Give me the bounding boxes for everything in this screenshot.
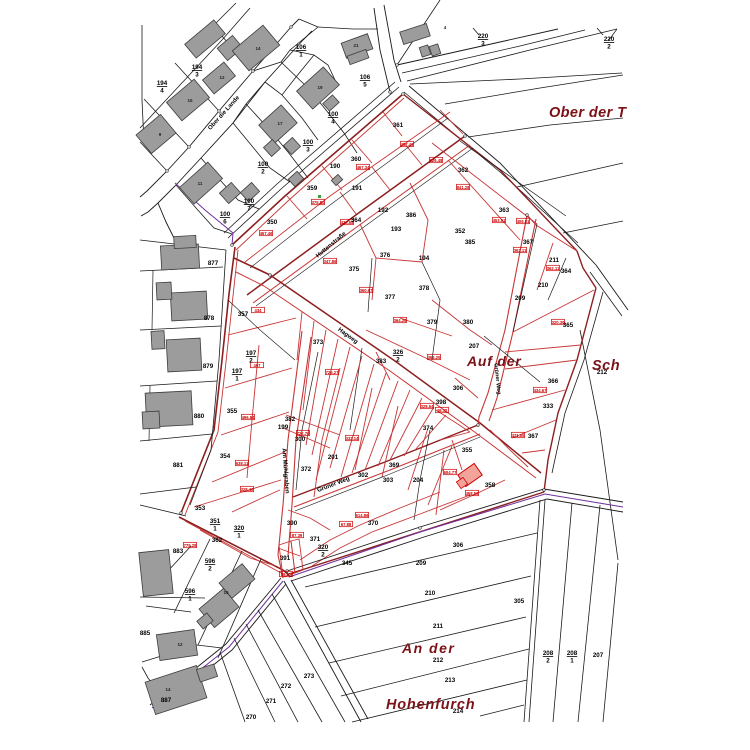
svg-text:367: 367: [523, 239, 534, 246]
svg-text:880: 880: [194, 413, 205, 420]
svg-text:883: 883: [173, 548, 184, 555]
svg-text:193: 193: [391, 226, 402, 233]
svg-text:365: 365: [563, 322, 574, 329]
svg-text:2: 2: [208, 566, 212, 573]
svg-text:371: 371: [310, 536, 321, 543]
svg-text:210: 210: [538, 282, 549, 289]
svg-text:67.88: 67.88: [341, 522, 352, 527]
svg-text:359: 359: [307, 185, 318, 192]
svg-text:273: 273: [304, 673, 315, 680]
svg-text:362.11: 362.11: [514, 248, 527, 253]
svg-text:376: 376: [380, 252, 391, 259]
svg-text:5: 5: [363, 82, 367, 89]
svg-text:14: 14: [165, 687, 171, 692]
svg-text:385: 385: [465, 239, 476, 246]
svg-text:305: 305: [514, 598, 525, 605]
svg-text:10: 10: [223, 590, 229, 595]
svg-text:191: 191: [352, 185, 363, 192]
svg-text:333: 333: [543, 403, 554, 410]
svg-text:210: 210: [425, 590, 436, 597]
svg-text:496.84: 496.84: [242, 415, 255, 420]
svg-text:106: 106: [296, 44, 307, 51]
svg-text:497: 497: [254, 363, 262, 368]
svg-text:209: 209: [515, 295, 526, 302]
svg-text:453.01: 453.01: [493, 218, 506, 223]
svg-text:100: 100: [258, 161, 269, 168]
svg-text:192: 192: [378, 207, 389, 214]
svg-text:364: 364: [561, 268, 572, 275]
svg-text:382: 382: [285, 416, 296, 423]
svg-text:19: 19: [317, 85, 323, 90]
svg-text:1: 1: [213, 526, 217, 533]
svg-text:2: 2: [607, 44, 611, 51]
svg-text:272: 272: [281, 683, 292, 690]
svg-text:328.64: 328.64: [421, 404, 434, 409]
svg-text:3: 3: [481, 41, 485, 48]
svg-text:87.39: 87.39: [292, 533, 303, 538]
svg-text:194: 194: [192, 64, 203, 71]
svg-text:457.46: 457.46: [401, 142, 414, 147]
svg-text:1: 1: [235, 376, 239, 383]
svg-text:14: 14: [255, 46, 261, 51]
svg-text:1: 1: [188, 596, 192, 603]
svg-text:626.48: 626.48: [430, 158, 443, 163]
svg-text:Hohenfurch: Hohenfurch: [386, 697, 475, 713]
svg-text:89.02: 89.02: [281, 572, 292, 577]
svg-text:209: 209: [416, 560, 427, 567]
svg-text:638.11: 638.11: [236, 461, 249, 466]
svg-text:208: 208: [567, 650, 578, 657]
svg-text:320: 320: [318, 544, 329, 551]
svg-text:885: 885: [140, 630, 151, 637]
svg-text:1: 1: [570, 658, 574, 665]
svg-text:7: 7: [247, 206, 251, 213]
svg-text:362.11: 362.11: [547, 266, 560, 271]
svg-text:207: 207: [593, 652, 604, 659]
svg-text:190: 190: [330, 163, 341, 170]
svg-text:409.81: 409.81: [517, 219, 530, 224]
svg-text:1: 1: [237, 533, 241, 540]
svg-text:879: 879: [203, 363, 214, 370]
svg-text:100: 100: [244, 198, 255, 205]
svg-text:370: 370: [368, 520, 379, 527]
svg-text:357: 357: [238, 311, 249, 318]
svg-text:364.26: 364.26: [394, 318, 407, 323]
svg-text:2: 2: [261, 169, 265, 176]
svg-text:208: 208: [543, 650, 554, 657]
svg-text:434.67: 434.67: [534, 388, 547, 393]
svg-text:3: 3: [306, 147, 310, 154]
svg-text:106: 106: [360, 74, 371, 81]
svg-text:380: 380: [463, 319, 474, 326]
svg-text:197: 197: [232, 368, 243, 375]
svg-text:378: 378: [419, 285, 430, 292]
svg-text:355: 355: [227, 408, 238, 415]
svg-text:306: 306: [453, 542, 464, 549]
svg-text:372: 372: [301, 466, 312, 473]
svg-text:100: 100: [220, 211, 231, 218]
svg-text:Auf der: Auf der: [466, 353, 522, 369]
svg-text:199: 199: [278, 424, 289, 431]
svg-text:367: 367: [528, 433, 539, 440]
svg-text:377: 377: [385, 294, 396, 301]
svg-text:364.25: 364.25: [428, 355, 441, 360]
svg-text:201: 201: [328, 454, 339, 461]
svg-text:211: 211: [549, 257, 560, 264]
svg-text:355: 355: [462, 447, 473, 454]
svg-text:361: 361: [393, 122, 404, 129]
svg-text:467.34: 467.34: [357, 165, 370, 170]
svg-text:12: 12: [219, 75, 225, 80]
svg-text:17: 17: [277, 121, 283, 126]
svg-text:2: 2: [249, 358, 253, 365]
svg-text:345: 345: [342, 560, 353, 567]
svg-text:360.67: 360.67: [360, 288, 373, 293]
svg-text:398: 398: [436, 399, 447, 406]
svg-text:391: 391: [280, 555, 291, 562]
svg-text:596: 596: [185, 588, 196, 595]
svg-text:362: 362: [458, 167, 469, 174]
svg-text:352: 352: [455, 228, 466, 235]
svg-text:364: 364: [351, 217, 362, 224]
svg-text:328.46: 328.46: [241, 487, 254, 492]
svg-text:211: 211: [433, 623, 444, 630]
svg-text:212: 212: [433, 657, 444, 664]
svg-text:2: 2: [396, 357, 400, 364]
svg-text:841.28: 841.28: [457, 185, 470, 190]
svg-text:4: 4: [160, 88, 164, 95]
svg-text:779.28: 779.28: [184, 543, 197, 548]
svg-text:375.80: 375.80: [312, 200, 325, 205]
svg-text:332.14: 332.14: [346, 436, 359, 441]
svg-text:369: 369: [389, 462, 400, 469]
svg-text:596: 596: [205, 558, 216, 565]
svg-text:434: 434: [255, 308, 263, 313]
svg-text:3: 3: [195, 72, 199, 79]
svg-text:320: 320: [234, 525, 245, 532]
svg-text:11: 11: [198, 181, 203, 186]
svg-text:2: 2: [546, 658, 550, 665]
svg-text:375: 375: [349, 266, 360, 273]
svg-text:100: 100: [303, 139, 314, 146]
svg-text:300: 300: [295, 436, 306, 443]
svg-text:358: 358: [485, 482, 496, 489]
svg-text:881: 881: [173, 462, 184, 469]
svg-text:302: 302: [358, 472, 369, 479]
svg-text:213: 213: [445, 677, 456, 684]
svg-text:An der: An der: [401, 640, 455, 656]
svg-text:6: 6: [223, 219, 227, 226]
svg-text:220: 220: [478, 33, 489, 40]
svg-text:877: 877: [208, 260, 219, 267]
svg-text:878: 878: [204, 315, 215, 322]
svg-text:458.56: 458.56: [466, 491, 479, 496]
svg-text:457.46: 457.46: [260, 231, 273, 236]
svg-text:194: 194: [419, 255, 430, 262]
svg-text:326: 326: [393, 349, 404, 356]
svg-text:347.86: 347.86: [324, 259, 337, 264]
svg-text:15: 15: [187, 98, 193, 103]
svg-text:887: 887: [161, 697, 172, 704]
svg-text:1: 1: [299, 52, 303, 59]
svg-text:220: 220: [604, 36, 615, 43]
svg-text:21: 21: [353, 43, 359, 48]
svg-text:362: 362: [212, 537, 223, 544]
svg-text:271: 271: [266, 698, 277, 705]
svg-text:366: 366: [548, 378, 559, 385]
svg-text:353: 353: [195, 505, 206, 512]
svg-text:2: 2: [321, 552, 325, 559]
svg-text:379: 379: [427, 319, 438, 326]
svg-text:197: 197: [246, 350, 257, 357]
svg-text:386: 386: [406, 212, 417, 219]
svg-text:725.27: 725.27: [326, 370, 339, 375]
svg-text:604.77: 604.77: [444, 470, 457, 475]
svg-text:306: 306: [453, 385, 464, 392]
svg-text:Ober der T: Ober der T: [549, 105, 627, 121]
svg-text:471.65: 471.65: [512, 433, 525, 438]
svg-text:360: 360: [351, 156, 362, 163]
svg-text:383: 383: [376, 358, 387, 365]
svg-text:350: 350: [267, 219, 278, 226]
svg-text:373: 373: [313, 339, 324, 346]
svg-text:390: 390: [287, 520, 298, 527]
svg-text:100: 100: [328, 111, 339, 118]
svg-text:194: 194: [157, 80, 168, 87]
svg-text:351: 351: [210, 518, 221, 525]
svg-text:614.86: 614.86: [356, 513, 369, 518]
svg-text:363: 363: [499, 207, 510, 214]
svg-text:49.32: 49.32: [437, 408, 448, 413]
svg-text:Sch: Sch: [592, 358, 620, 374]
svg-text:354: 354: [220, 453, 231, 460]
svg-text:4: 4: [331, 119, 335, 126]
svg-text:204: 204: [413, 477, 424, 484]
svg-text:374: 374: [423, 425, 434, 432]
svg-text:12: 12: [177, 642, 183, 647]
svg-text:207: 207: [469, 343, 480, 350]
svg-text:303: 303: [383, 477, 394, 484]
svg-text:270: 270: [246, 714, 257, 721]
